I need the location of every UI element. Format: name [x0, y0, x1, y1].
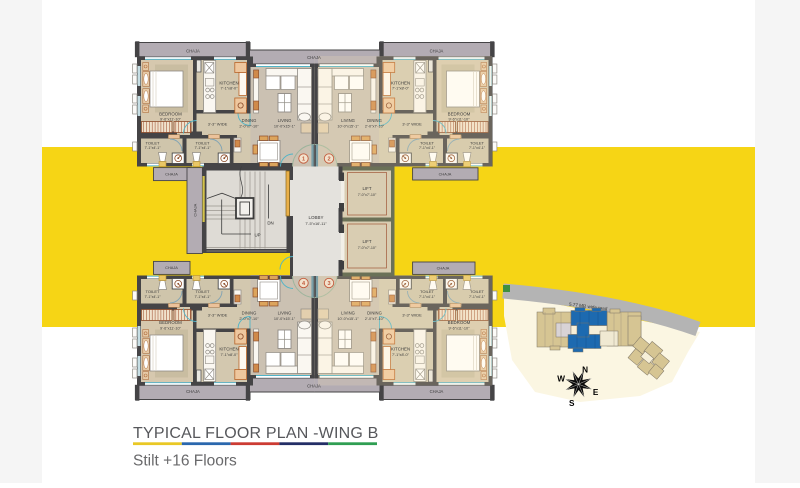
svg-text:LIFT: LIFT [362, 186, 371, 191]
svg-text:7'-1"x8'-0": 7'-1"x8'-0" [220, 87, 238, 91]
svg-text:7'-1"x4'-1": 7'-1"x4'-1" [194, 295, 211, 299]
svg-text:LIVING: LIVING [341, 118, 355, 123]
svg-text:7'-1"x8'-0": 7'-1"x8'-0" [392, 353, 410, 357]
svg-text:TOILET: TOILET [420, 140, 434, 145]
svg-text:7'-1"x4'-1": 7'-1"x4'-1" [144, 295, 161, 299]
svg-text:7'-1"x4'-1": 7'-1"x4'-1" [419, 146, 436, 150]
svg-text:KITCHEN: KITCHEN [391, 346, 410, 351]
svg-text:TYPICAL FLOOR PLAN -WING B: TYPICAL FLOOR PLAN -WING B [133, 425, 379, 442]
svg-text:DINING: DINING [367, 311, 382, 316]
svg-text:W: W [557, 375, 565, 384]
svg-text:UP: UP [254, 232, 260, 237]
svg-text:LIVING: LIVING [341, 311, 355, 316]
svg-text:3'-3" WIDE: 3'-3" WIDE [402, 122, 422, 127]
svg-text:9'-6"x11'-10": 9'-6"x11'-10" [160, 326, 182, 330]
svg-text:CHAJA: CHAJA [430, 48, 444, 53]
svg-text:BEDROOM: BEDROOM [448, 320, 471, 325]
svg-text:2'-0"x7'-10": 2'-0"x7'-10" [239, 124, 259, 128]
svg-text:CHAJA: CHAJA [437, 266, 450, 271]
svg-text:3'-3" WIDE: 3'-3" WIDE [208, 313, 228, 318]
svg-text:BEDROOM: BEDROOM [448, 111, 471, 116]
svg-text:7'-1"x4'-1": 7'-1"x4'-1" [194, 146, 211, 150]
svg-text:7'-1"x4'-1": 7'-1"x4'-1" [469, 295, 486, 299]
svg-text:7'-1"x8'-0": 7'-1"x8'-0" [392, 87, 410, 91]
svg-text:BEDROOM: BEDROOM [159, 111, 182, 116]
svg-text:LIVING: LIVING [278, 118, 292, 123]
svg-text:2: 2 [327, 157, 330, 163]
svg-text:DINING: DINING [367, 118, 382, 123]
svg-text:LIVING: LIVING [278, 311, 292, 316]
svg-text:2'-0"x7'-10": 2'-0"x7'-10" [365, 124, 385, 128]
svg-text:LIFT: LIFT [362, 239, 371, 244]
svg-text:7'-1"x4'-1": 7'-1"x4'-1" [469, 146, 486, 150]
svg-text:10'-0"x15'-1": 10'-0"x15'-1" [337, 124, 359, 128]
svg-text:BEDROOM: BEDROOM [159, 320, 182, 325]
svg-text:1: 1 [302, 157, 305, 163]
svg-text:3'-3" WIDE: 3'-3" WIDE [208, 122, 228, 127]
svg-text:KITCHEN: KITCHEN [219, 80, 238, 85]
svg-text:10'-0"x15'-1": 10'-0"x15'-1" [274, 317, 296, 321]
svg-text:CHAJA: CHAJA [186, 48, 200, 53]
svg-text:CHAJA: CHAJA [165, 171, 178, 176]
svg-text:DINING: DINING [242, 118, 257, 123]
svg-text:9'-6"x11'-10": 9'-6"x11'-10" [160, 118, 182, 122]
svg-text:CHAJA: CHAJA [193, 203, 198, 216]
svg-text:10'-0"x15'-1": 10'-0"x15'-1" [337, 317, 359, 321]
svg-text:Stilt +16 Floors: Stilt +16 Floors [133, 453, 237, 470]
svg-text:TOILET: TOILET [470, 140, 484, 145]
svg-text:10'-0"x15'-1": 10'-0"x15'-1" [274, 124, 296, 128]
svg-text:9'-6"x11'-10": 9'-6"x11'-10" [449, 326, 471, 330]
svg-text:7'-1"x4'-1": 7'-1"x4'-1" [419, 295, 436, 299]
svg-text:CHAJA: CHAJA [186, 389, 200, 394]
svg-text:3: 3 [327, 281, 330, 287]
svg-text:N: N [582, 365, 588, 374]
svg-text:7'-5"x16'-11": 7'-5"x16'-11" [305, 221, 327, 226]
svg-text:TOILET: TOILET [146, 140, 160, 145]
svg-text:CHAJA: CHAJA [430, 389, 444, 394]
svg-text:DN: DN [267, 221, 273, 226]
svg-text:TOILET: TOILET [420, 289, 434, 294]
svg-text:7'-1"x4'-1": 7'-1"x4'-1" [144, 146, 161, 150]
svg-text:CHAJA: CHAJA [439, 171, 452, 176]
svg-text:TOILET: TOILET [470, 289, 484, 294]
svg-text:7'-0"x7'-10": 7'-0"x7'-10" [358, 246, 377, 250]
svg-text:KITCHEN: KITCHEN [391, 80, 410, 85]
svg-text:7'-0"x7'-10": 7'-0"x7'-10" [358, 193, 377, 197]
svg-text:CHAJA: CHAJA [307, 55, 321, 60]
svg-text:TOILET: TOILET [196, 140, 210, 145]
svg-text:DINING: DINING [242, 311, 257, 316]
svg-text:TOILET: TOILET [196, 289, 210, 294]
svg-text:CHAJA: CHAJA [307, 384, 321, 389]
svg-text:2'-0"x7'-10": 2'-0"x7'-10" [365, 317, 385, 321]
svg-text:7'-1"x8'-0": 7'-1"x8'-0" [220, 353, 238, 357]
svg-text:E: E [593, 388, 599, 397]
svg-text:CHAJA: CHAJA [165, 265, 178, 270]
svg-text:TOILET: TOILET [146, 289, 160, 294]
svg-text:3'-3" WIDE: 3'-3" WIDE [402, 313, 422, 318]
svg-text:KITCHEN: KITCHEN [219, 346, 238, 351]
svg-text:9'-6"x11'-10": 9'-6"x11'-10" [449, 118, 471, 122]
svg-text:2'-0"x7'-10": 2'-0"x7'-10" [239, 317, 259, 321]
svg-text:S: S [569, 399, 575, 408]
svg-text:LOBBY: LOBBY [308, 215, 323, 220]
